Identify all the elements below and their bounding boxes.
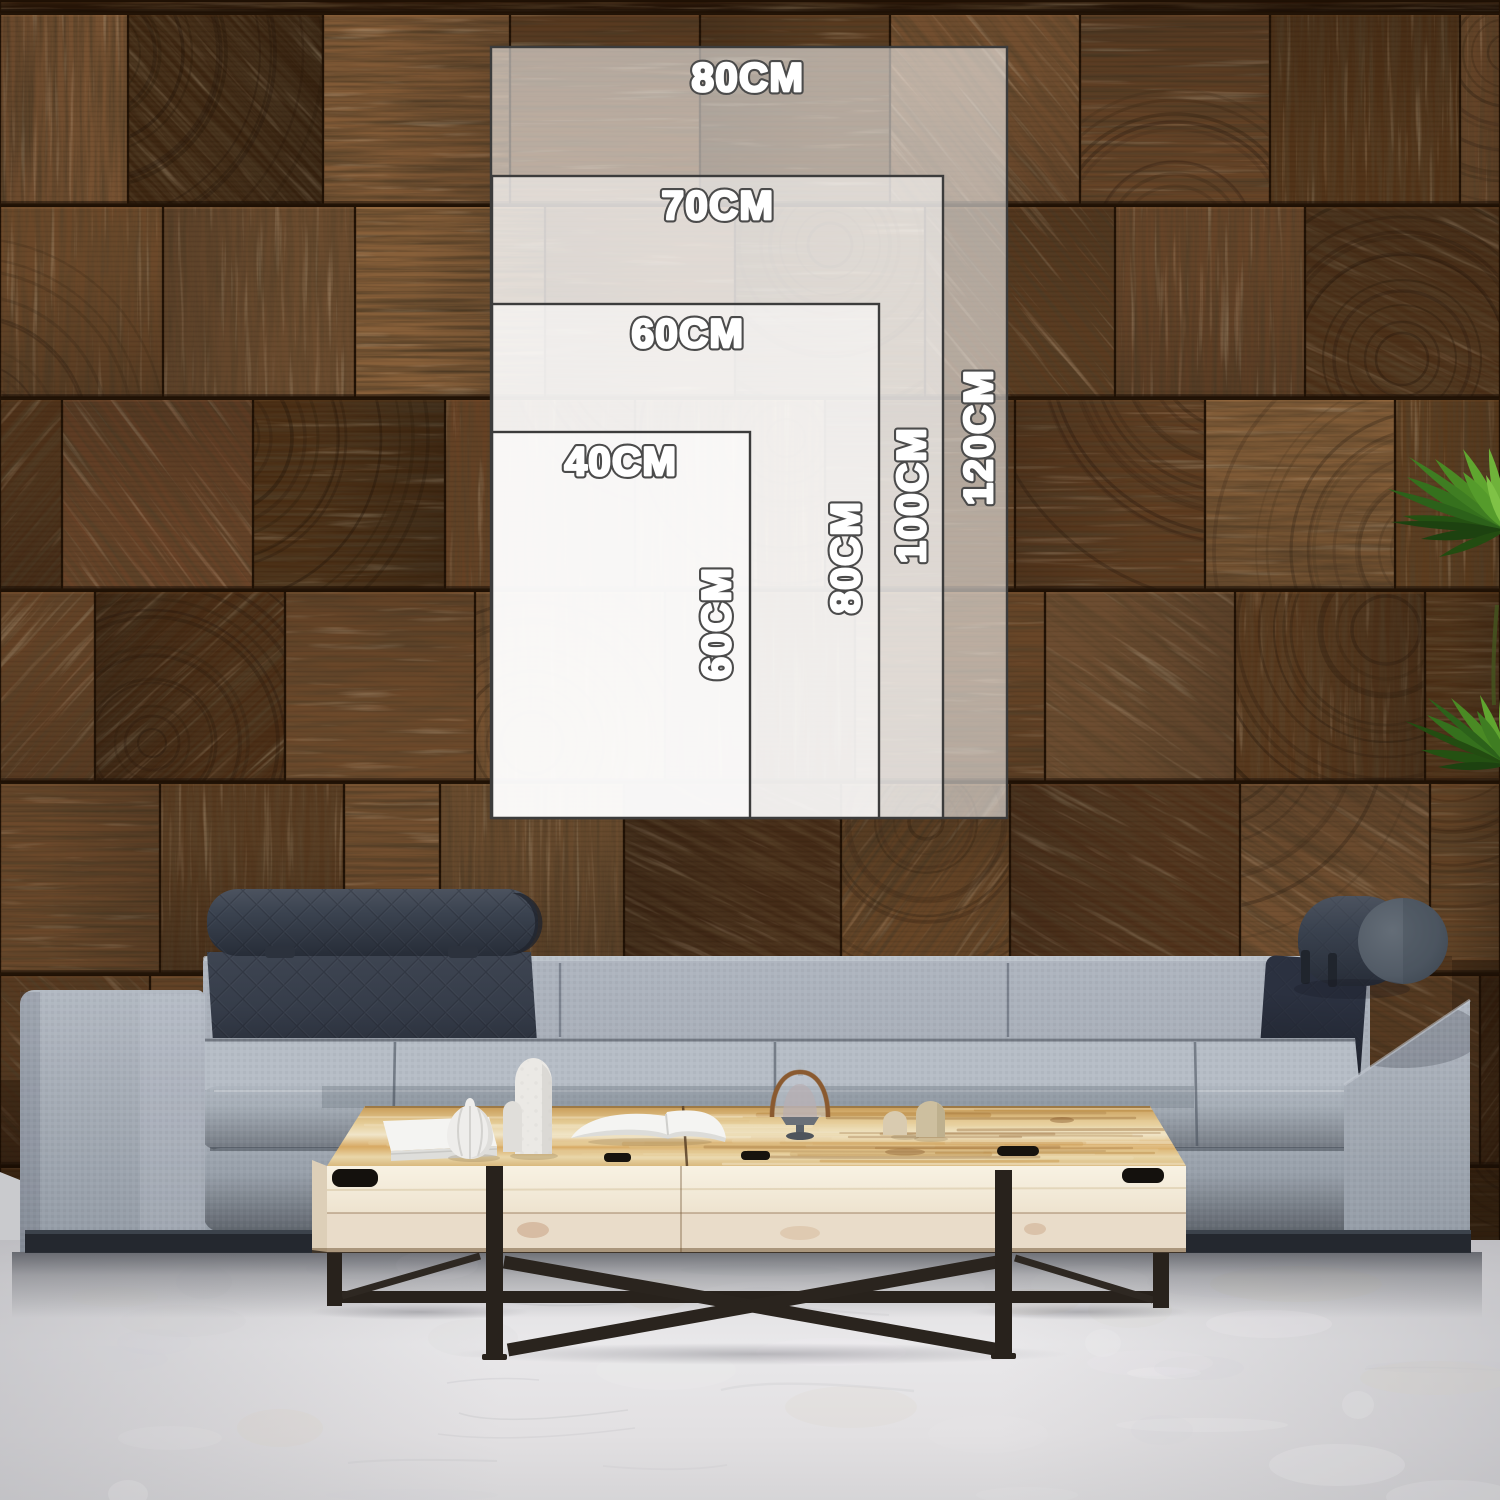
svg-text:60CM: 60CM [695, 567, 739, 680]
svg-text:60CM: 60CM [632, 312, 745, 356]
svg-text:120CM: 120CM [957, 369, 1001, 505]
svg-text:80CM: 80CM [824, 501, 868, 614]
svg-text:40CM: 40CM [565, 440, 678, 484]
svg-text:100CM: 100CM [890, 427, 934, 563]
svg-text:80CM: 80CM [692, 56, 805, 100]
svg-text:70CM: 70CM [662, 184, 775, 228]
